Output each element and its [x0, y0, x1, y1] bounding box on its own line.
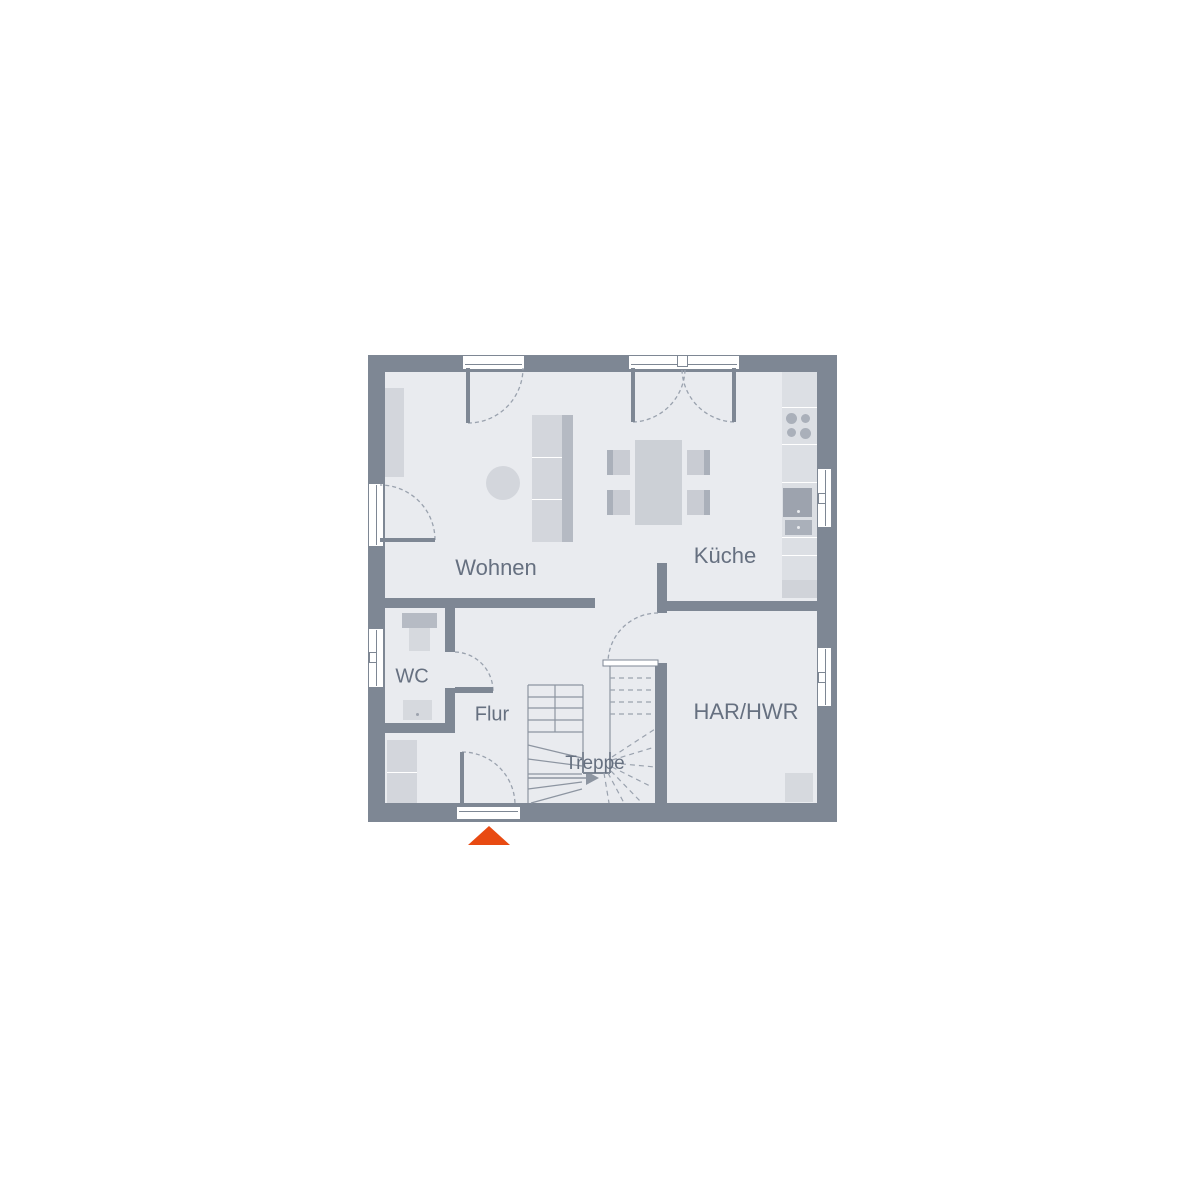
floor-plan: Wohnen Küche WC Flur Treppe HAR/HWR	[368, 355, 837, 822]
plan-linework	[368, 355, 837, 822]
entrance-door-leaf	[460, 752, 464, 805]
floor-plan-page: Wohnen Küche WC Flur Treppe HAR/HWR	[0, 0, 1200, 1200]
french-door-right-arc	[682, 370, 734, 422]
terrace-door-arc	[468, 368, 523, 423]
stair-lower-flight	[528, 666, 610, 803]
entrance-marker	[468, 826, 510, 845]
french-door-right-leaf	[732, 368, 736, 422]
room-label-hallway: Flur	[475, 704, 509, 727]
room-label-wc: WC	[395, 666, 428, 689]
living-side-door-leaf	[380, 538, 435, 542]
stair-top-edge	[603, 660, 658, 666]
living-side-door-arc	[380, 485, 435, 540]
french-door-left-arc	[633, 370, 685, 422]
room-label-living: Wohnen	[455, 555, 537, 581]
door-leaves	[380, 368, 736, 805]
utility-door-arc	[608, 613, 658, 663]
staircase	[528, 660, 658, 803]
room-label-utility: HAR/HWR	[693, 699, 798, 725]
door-swing-arcs	[380, 368, 734, 804]
wc-door-arc	[455, 652, 493, 691]
stair-upper-flight	[604, 678, 655, 803]
wc-door-leaf	[455, 687, 493, 693]
room-label-kitchen: Küche	[694, 543, 756, 569]
french-door-left-leaf	[631, 368, 635, 422]
entrance-door-arc	[462, 752, 515, 804]
room-label-stairs: Treppe	[565, 753, 625, 775]
terrace-door-leaf	[466, 368, 470, 423]
